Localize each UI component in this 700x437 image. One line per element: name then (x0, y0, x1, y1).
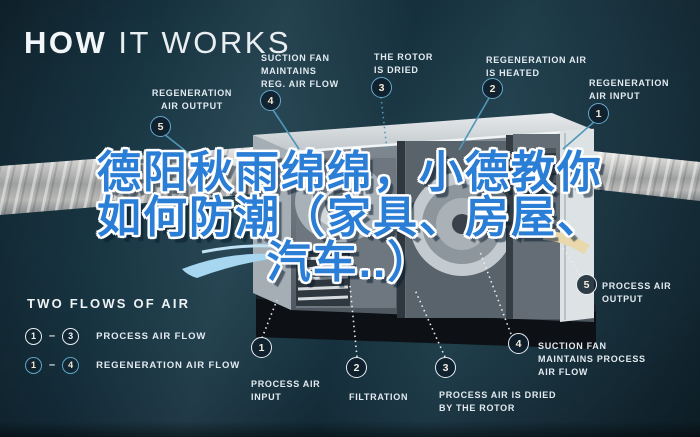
legend-circle-3-white: 3 (62, 328, 79, 345)
label-filtration: FILTRATION (349, 391, 408, 404)
label-regeneration-air-heated: REGENERATION AIR IS HEATED (486, 54, 587, 80)
legend-dash: – (49, 330, 55, 342)
badge-regen-2: 2 (482, 78, 503, 99)
how-it-works-infographic: HOW IT WORKS REGENERATION AIR OUTPUT 5 S… (0, 0, 700, 437)
label-suction-fan-process: SUCTION FAN MAINTAINS PROCESS AIR FLOW (538, 340, 646, 379)
page-title: HOW IT WORKS (24, 25, 291, 61)
badge-regen-1: 1 (588, 103, 609, 124)
label-process-air-dried: PROCESS AIR IS DRIED BY THE ROTOR (439, 389, 556, 415)
legend-dash: – (49, 359, 55, 371)
legend-circle-1-white: 1 (25, 328, 42, 345)
label-regeneration-air-output: REGENERATION AIR OUTPUT (148, 87, 236, 113)
legend-row-process: 1 – 3 PROCESS AIR FLOW (25, 326, 206, 346)
legend-row-regeneration: 1 – 4 REGENERATION AIR FLOW (25, 355, 240, 375)
label-rotor-is-dried: THE ROTOR IS DRIED (374, 51, 433, 77)
badge-process-1: 1 (251, 337, 272, 358)
badge-process-3: 3 (435, 357, 456, 378)
legend-circle-4-blue: 4 (62, 357, 79, 374)
badge-process-2: 2 (346, 357, 367, 378)
badge-regen-5: 5 (150, 116, 171, 137)
legend-label-regeneration: REGENERATION AIR FLOW (96, 360, 240, 371)
watermark-line-1: 德阳秋雨绵绵，小德教你 (0, 150, 700, 195)
badge-process-4: 4 (508, 333, 529, 354)
legend-circle-1-blue: 1 (25, 357, 42, 374)
legend-title: TWO FLOWS OF AIR (27, 296, 190, 311)
badge-regen-3: 3 (371, 77, 392, 98)
label-regeneration-air-input: REGENERATION AIR INPUT (589, 77, 669, 103)
legend-label-process: PROCESS AIR FLOW (96, 331, 206, 342)
watermark-line-2: 如何防潮（家具、房屋、 (0, 195, 700, 240)
title-word-how: HOW (24, 25, 107, 60)
label-suction-fan-reg: SUCTION FAN MAINTAINS REG. AIR FLOW (261, 52, 339, 91)
label-process-air-input: PROCESS AIR INPUT (251, 378, 320, 404)
badge-regen-4: 4 (260, 90, 281, 111)
chinese-watermark-text: 德阳秋雨绵绵，小德教你 如何防潮（家具、房屋、 汽车..） (0, 150, 700, 285)
watermark-line-3: 汽车..） (0, 240, 700, 285)
